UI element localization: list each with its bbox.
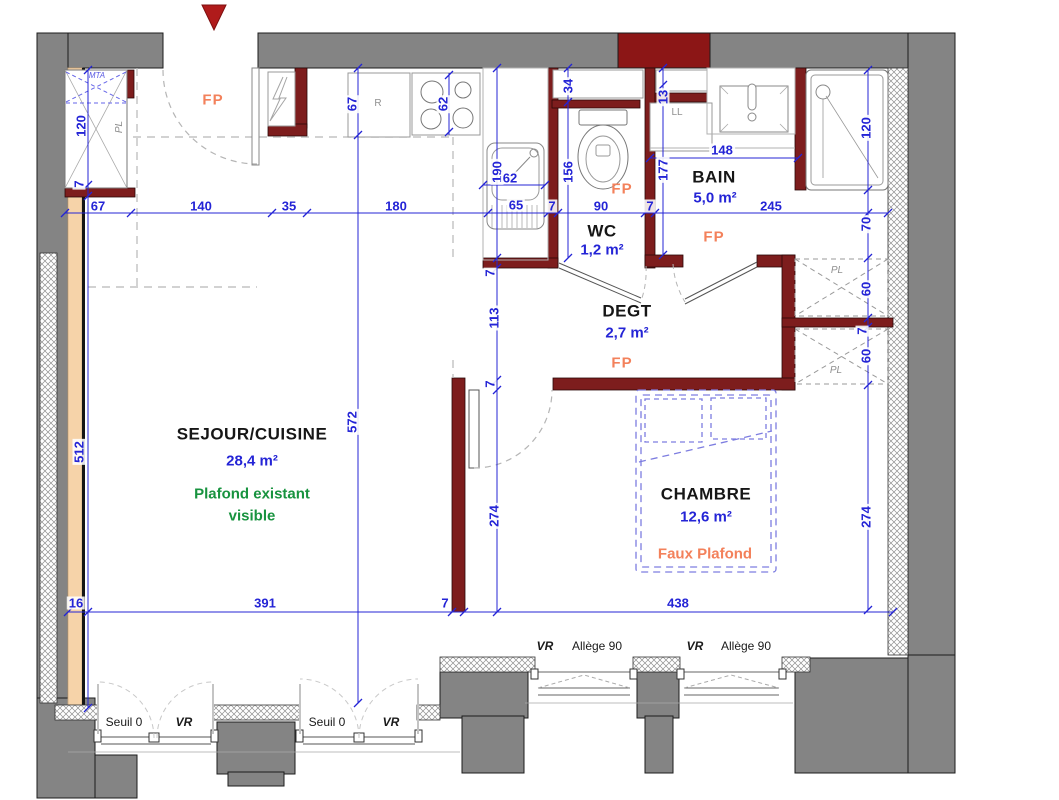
electrical-panel-icon — [268, 72, 295, 126]
dim-wc-0: 34 — [562, 77, 575, 95]
room-sejour-note: Plafond existant visible — [172, 483, 332, 527]
room-degt-area: 2,7 m² — [605, 326, 648, 341]
shower-fixture — [806, 70, 888, 190]
dim-passage-3: 7 — [484, 378, 497, 389]
fp-label-bain: FP — [703, 230, 724, 245]
room-degt-name: DEGT — [602, 303, 651, 320]
dim-bottom-2: 7 — [439, 597, 450, 610]
french-window-2 — [296, 679, 422, 744]
dim-top-3: 180 — [383, 200, 409, 213]
fp-label-wc: FP — [611, 182, 632, 197]
dim-bain-0: 13 — [657, 88, 670, 106]
vr-label-1: VR — [176, 716, 193, 728]
room-wc-name: WC — [587, 223, 616, 240]
dim-top-5: 7 — [546, 200, 557, 213]
chambre-door-leaf — [469, 390, 479, 468]
wc-door-swing — [641, 266, 646, 301]
dim-top-6: 90 — [592, 200, 610, 213]
room-sejour-area: 28,4 m² — [226, 454, 278, 469]
dim-bain-sink-width: 148 — [709, 144, 735, 157]
dim-top-0: 67 — [89, 200, 107, 213]
window-3 — [531, 669, 637, 695]
allege-label-1: Allège 90 — [572, 640, 622, 652]
window-4 — [677, 669, 786, 695]
dim-bottom-0: 16 — [67, 597, 85, 610]
pl-label-right-1: PL — [831, 266, 843, 276]
dim-top-2: 35 — [280, 200, 298, 213]
dim-right-0: 120 — [860, 115, 873, 141]
allege-label-2: Allège 90 — [721, 640, 771, 652]
room-sejour-name: SEJOUR/CUISINE — [177, 426, 328, 443]
dim-top-1: 140 — [188, 200, 214, 213]
pl-label-right-2: PL — [830, 366, 842, 376]
room-bain-area: 5,0 m² — [693, 191, 736, 206]
seuil-label-1: Seuil 0 — [106, 716, 143, 728]
fp-label-entrance: FP — [202, 93, 223, 108]
french-window-1 — [94, 682, 218, 744]
entrance-arrow-icon — [202, 5, 226, 30]
room-chambre-name: CHAMBRE — [661, 486, 751, 503]
room-wc-area: 1,2 m² — [580, 243, 623, 258]
top-accent-block — [618, 33, 710, 68]
fridge-label: R — [374, 99, 381, 109]
dim-bottom-3: 438 — [665, 597, 691, 610]
dim-bain-1: 177 — [657, 157, 670, 183]
entrance-door-leaf — [252, 68, 259, 165]
bathroom-sink-fixture — [707, 68, 795, 134]
vr-label-2: VR — [383, 716, 400, 728]
dim-top-4: 65 — [507, 199, 525, 212]
dim-bottom-1: 391 — [252, 597, 278, 610]
partition-walls — [65, 68, 893, 612]
dim-left-2: 512 — [73, 439, 86, 465]
room-bain-name: BAIN — [692, 169, 736, 186]
dim-right-2: 60 — [860, 280, 873, 298]
bain-door-leaf — [685, 262, 757, 304]
seuil-label-2: Seuil 0 — [309, 716, 346, 728]
dim-passage-2: 113 — [488, 306, 501, 331]
dim-center-0: 67 — [346, 95, 359, 113]
dim-wc-1: 156 — [562, 159, 575, 185]
dim-passage-1: 7 — [484, 267, 497, 278]
dim-right-4: 60 — [860, 347, 873, 365]
dim-top-8: 245 — [758, 200, 784, 213]
plan-graphics — [0, 0, 1059, 800]
wc-door-leaf — [559, 263, 641, 303]
dim-passage-4: 274 — [488, 503, 501, 529]
bain-door-swing — [673, 264, 685, 302]
room-chambre-note: Faux Plafond — [658, 547, 752, 562]
vr-label-4: VR — [687, 640, 704, 652]
floor-plan: SEJOUR/CUISINE 28,4 m² Plafond existant … — [0, 0, 1059, 800]
dim-right-3: 7 — [856, 325, 869, 336]
ll-label: LL — [671, 108, 682, 118]
dim-left-0: 120 — [75, 113, 88, 139]
dim-sink-width: 62 — [501, 172, 519, 185]
room-chambre-area: 12,6 m² — [680, 510, 732, 525]
fp-label-degt: FP — [611, 356, 632, 371]
dim-right-5: 274 — [860, 504, 873, 530]
chambre-door-swing — [474, 390, 552, 468]
vr-label-3: VR — [537, 640, 554, 652]
pl-label-entry: PL — [115, 121, 125, 133]
dim-right-1: 70 — [860, 215, 873, 233]
dim-top-7: 7 — [644, 200, 655, 213]
toilet-fixture — [578, 110, 628, 189]
entrance-door-swing — [163, 70, 257, 164]
dim-center-1: 572 — [346, 409, 359, 435]
dim-hob-width: 62 — [437, 95, 450, 113]
mta-label: MTA — [89, 72, 105, 80]
dim-left-1: 7 — [73, 178, 86, 189]
